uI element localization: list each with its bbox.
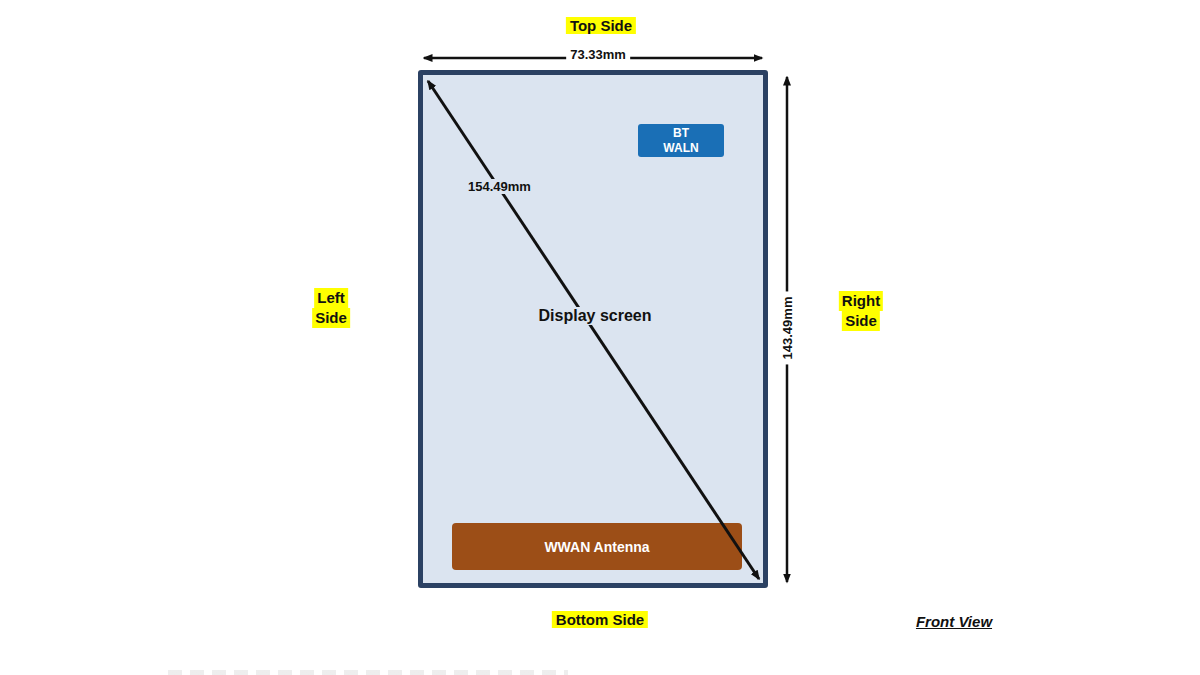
left-side-label: Left Side	[312, 288, 350, 328]
bt-badge-line1: BT	[638, 126, 724, 141]
bt-badge-line2: WALN	[638, 141, 724, 156]
diagonal-dimension-value: 154.49mm	[466, 179, 533, 194]
top-side-label: Top Side	[566, 17, 636, 34]
width-dimension-value: 73.33mm	[566, 47, 630, 62]
right-side-label: Right Side	[839, 291, 883, 331]
front-view-caption: Front View	[916, 613, 992, 630]
height-dimension-value: 143.49mm	[780, 292, 795, 365]
bt-wlan-badge: BT WALN	[638, 124, 724, 157]
cropped-text-artifact	[168, 670, 568, 675]
front-view-diagram: BT WALN WWAN Antenna Top Side Left Side …	[0, 0, 1200, 675]
wwan-antenna-bar: WWAN Antenna	[452, 523, 742, 570]
wwan-antenna-label: WWAN Antenna	[544, 539, 649, 555]
display-screen-label: Display screen	[534, 307, 657, 325]
bottom-side-label: Bottom Side	[552, 611, 648, 628]
